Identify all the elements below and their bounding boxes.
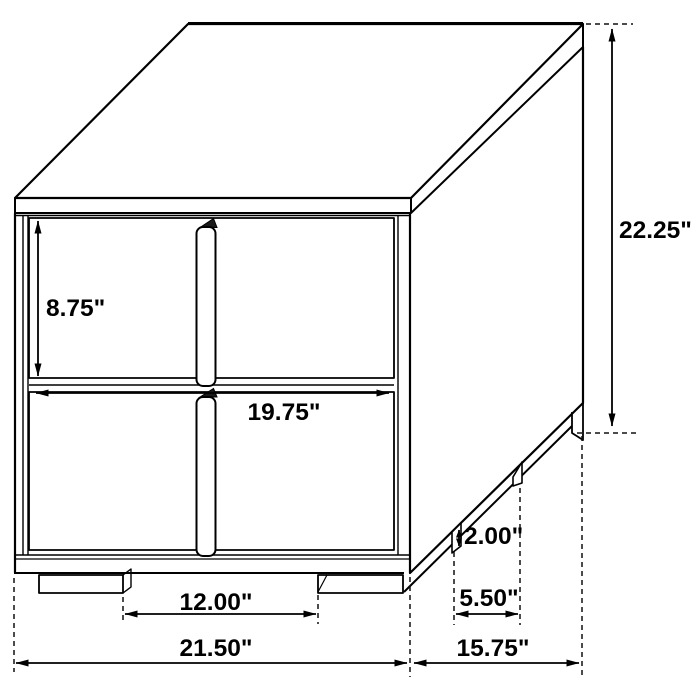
dim-label-drawer-height: 8.75"	[46, 295, 105, 322]
dim-label-side-foot-spacing: 5.50"	[459, 585, 518, 612]
top-drawer-handle	[197, 219, 218, 387]
dim-front-foot-spacing: 12.00"	[125, 589, 316, 616]
front-foot-left	[39, 575, 123, 593]
side-base	[404, 403, 583, 592]
dim-label-front-foot-spacing: 12.00"	[180, 589, 253, 616]
side-panel-outline	[410, 47, 583, 573]
dim-side-foot-spacing: 5.50"	[456, 585, 519, 614]
side-plinth-bottom-edge	[404, 426, 572, 592]
top-panel-front-edge	[15, 198, 411, 213]
front-left-stile-lines	[23, 215, 28, 555]
front-foot-right	[318, 575, 403, 593]
bottom-drawer-handle	[197, 389, 218, 557]
dimension-annotations: 22.25" 8.75" 19.75" 2.00" 5.50" 12.00" 2…	[16, 29, 692, 663]
dim-foot-height: 2.00"	[459, 523, 523, 550]
bottom-handle-bar	[197, 397, 216, 556]
dim-label-overall-height: 22.25"	[619, 217, 692, 244]
dim-overall-depth: 15.75"	[414, 635, 579, 663]
dim-overall-height: 22.25"	[612, 29, 692, 426]
top-handle-bar	[197, 227, 216, 386]
dim-label-overall-width: 21.50"	[180, 635, 253, 662]
top-panel-face	[15, 24, 583, 198]
side-foot-back	[513, 462, 522, 486]
dim-label-foot-height: 2.00"	[464, 523, 523, 550]
diagram-canvas: 22.25" 8.75" 19.75" 2.00" 5.50" 12.00" 2…	[0, 0, 700, 700]
dim-label-overall-depth: 15.75"	[457, 635, 530, 662]
nightstand-dimension-diagram: 22.25" 8.75" 19.75" 2.00" 5.50" 12.00" 2…	[0, 0, 700, 700]
dim-overall-width: 21.50"	[16, 635, 407, 663]
top-panel-right-edge-face	[411, 24, 583, 213]
dim-label-drawer-width: 19.75"	[248, 399, 321, 426]
dim-drawer-height: 8.75"	[38, 221, 105, 376]
